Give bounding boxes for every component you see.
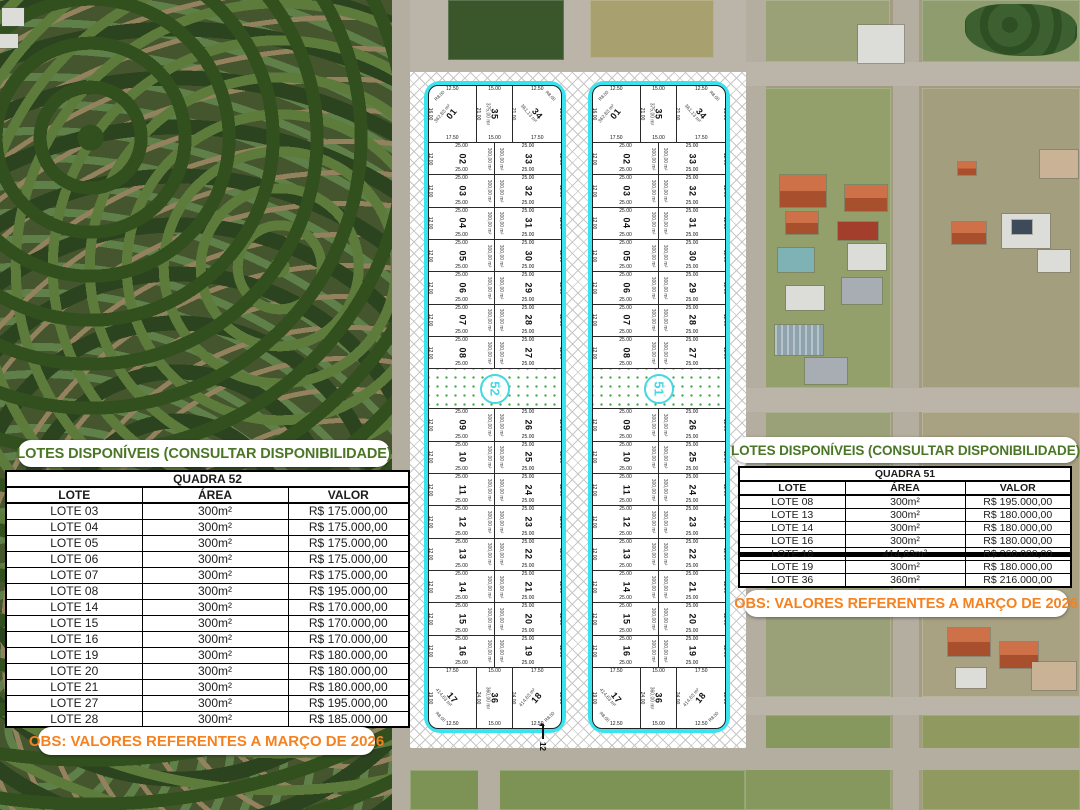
lot-cell: 17.5012.5019.0018414,63 m²R8.00 [513,668,561,728]
lot-cell: 25.0025.0012.0013300,00 m² [429,539,495,570]
dimension-label: 25.00 [455,507,468,512]
dimension-label: 25.00 [522,168,535,173]
lot-row: 25.0025.0012.0011300,00 m²25.0025.0012.0… [593,474,725,506]
lot-number: 15 [621,613,630,624]
dimension-label: 12.00 [428,613,432,626]
cell-area: 300m² [142,535,288,551]
road [745,388,1080,412]
dimension-label: 12.00 [592,249,596,262]
dimension-label: 19.00 [722,692,726,705]
lot-number: 30 [524,250,533,261]
dimension-label: 12.50 [610,87,623,92]
cell-valor: R$ 180.000,00 [288,663,409,679]
dimension-label: 12.00 [428,346,432,359]
area-label: 300,00 m² [498,212,503,235]
dimension-label: 12.00 [558,217,562,230]
table-row: LOTE 13300m²R$ 180.000,00 [739,509,1071,522]
dimension-label: 25.00 [686,306,699,311]
dimension-label: 25.00 [455,564,468,569]
dimension-label: 12.50 [695,722,708,727]
house-roof [805,358,847,384]
title-banner-text: LOTES DISPONÍVEIS (CONSULTAR DISPONIBILI… [731,443,1080,458]
lot-cell: 17.5012.5019.0017414,63 m²R8.00 [593,668,641,728]
dimension-label: 25.00 [619,265,632,270]
dimension-label: 25.00 [619,604,632,609]
dimension-label: 12.00 [428,314,432,327]
lot-cell: 25.0025.0012.0002300,00 m² [429,143,495,174]
area-label: 300,00 m² [486,511,491,534]
dimension-label: 24.00 [638,692,643,705]
dimension-label: 25.00 [455,499,468,504]
lot-row: 25.0025.0012.0015300,00 m²25.0025.0012.0… [429,603,561,635]
dimension-label: 12.00 [558,282,562,295]
table-row: LOTE 19300m²R$ 180.000,00 [6,647,409,663]
area-label: 300,00 m² [498,341,503,364]
dimension-label: 25.00 [455,572,468,577]
dimension-label: 12.00 [592,346,596,359]
cell-lote: LOTE 16 [739,535,845,548]
dimension-label: 12.00 [592,548,596,561]
dimension-label: 25.00 [686,168,699,173]
lot-number: 20 [688,613,697,624]
lot-number: 36 [654,692,663,703]
lot-row: 25.0025.0012.0005300,00 m²25.0025.0012.0… [429,240,561,272]
lot-number: 07 [457,315,466,326]
area-label: 300,00 m² [650,309,655,332]
area-label: 360,00 m² [649,687,654,710]
dimension-label: 15.00 [652,722,665,727]
building [2,8,24,26]
dimension-label: 12.00 [558,516,562,529]
dimension-label: 25.00 [522,499,535,504]
house-roof [956,668,986,688]
lot-number: 13 [621,549,630,560]
lot-cell: 25.0025.0012.0007300,00 m² [429,305,495,336]
area-label: 300,00 m² [486,309,491,332]
cell-valor: R$ 180.000,00 [965,561,1071,574]
dimension-label: 25.00 [455,233,468,238]
dimension-label: 12.00 [428,249,432,262]
lot-cell: 25.0025.0012.0008300,00 m² [593,337,659,368]
column-header: LOTE [6,487,142,503]
road [410,748,1080,770]
dimension-label: 25.00 [455,298,468,303]
lot-cell: 25.0025.0012.0010300,00 m² [429,442,495,473]
cell-lote: LOTE 27 [6,695,142,711]
table-row: LOTE 03300m²R$ 175.000,00 [6,503,409,519]
lot-cell: 25.0025.0012.0014300,00 m² [593,571,659,602]
area-label: 300,00 m² [662,180,667,203]
cell-lote: LOTE 08 [739,495,845,509]
dimension-label: 25.00 [522,233,535,238]
lot-row: 25.0025.0012.0013300,00 m²25.0025.0012.0… [429,539,561,571]
dimension-label: 25.00 [686,467,699,472]
dimension-label: 12.00 [428,483,432,496]
dimension-label: 25.00 [686,572,699,577]
house-roof [786,286,824,310]
lot-cell: 12.5017.5016.0034361,13 m²R8.00 [513,86,561,142]
dimension-label: 25.00 [686,564,699,569]
cell-area: 300m² [142,631,288,647]
lot-row: 25.0025.0012.0009300,00 m²25.0025.0012.0… [593,409,725,441]
lot-row: 12.5017.5016.0001362,83 m²R8.0015.0015.0… [593,86,725,143]
lot-cell: 25.0025.0012.0022300,00 m² [495,539,561,570]
obs-banner-text: OBS: VALORES REFERENTES A MARÇO DE 2026 [29,733,384,750]
lot-cell: 25.0025.0012.0015300,00 m² [593,603,659,634]
dimension-label: 25.00 [686,661,699,666]
lot-row: 25.0025.0012.0015300,00 m²25.0025.0012.0… [593,603,725,635]
lot-number: 27 [524,347,533,358]
lot-cell: 25.0025.0012.0026300,00 m² [495,409,561,440]
area-label: 300,00 m² [662,575,667,598]
area-label: 300,00 m² [650,341,655,364]
cell-area: 300m² [845,561,965,574]
block-number-badge: 52 [480,374,510,404]
lot-number: 12 [457,516,466,527]
dimension-label: 12.00 [592,645,596,658]
obs-banner-text: OBS: VALORES REFERENTES A MARÇO DE 2026 [734,596,1078,612]
area-label: 300,00 m² [486,147,491,170]
lot-number: 28 [524,315,533,326]
lot-cell: 25.0025.0012.0004300,00 m² [593,208,659,239]
dimension-label: 25.00 [619,330,632,335]
cell-area: 300m² [142,519,288,535]
lot-cell: 25.0025.0012.0012300,00 m² [593,506,659,537]
lot-cell: 12.5017.5016.0001362,83 m²R8.00 [429,86,477,142]
dimension-label: 12.00 [428,580,432,593]
area-label: 300,00 m² [486,277,491,300]
dimension-label: 25.00 [522,176,535,181]
lot-number: 10 [621,452,630,463]
table-row: LOTE 04300m²R$ 175.000,00 [6,519,409,535]
lot-cell: 25.0025.0012.0012300,00 m² [429,506,495,537]
lot-number: 19 [524,646,533,657]
corner-radius-label: R8.00 [434,712,446,724]
dimension-label: 25.00 [686,241,699,246]
lot-cell: 25.0025.0012.0010300,00 m² [593,442,659,473]
dimension-label: 12.00 [722,580,726,593]
house-roof [848,244,886,270]
dimension-label: 25.00 [619,168,632,173]
dimension-label: 25.00 [455,596,468,601]
corner-radius-label: R8.00 [708,712,720,724]
block-number: 52 [488,382,503,396]
house-roof [780,175,826,207]
dimension-label: 25.00 [522,241,535,246]
dimension-label: 25.00 [619,572,632,577]
lot-cell: 25.0025.0012.0024300,00 m² [659,474,725,505]
dimension-label: 12.00 [592,419,596,432]
trees [965,4,1077,56]
lot-number: 32 [524,185,533,196]
lot-number: 33 [688,153,697,164]
lot-number: 28 [688,315,697,326]
lot-cell: 25.0025.0012.0009300,00 m² [429,409,495,440]
dimension-label: 25.00 [455,209,468,214]
dimension-label: 25.00 [686,443,699,448]
lot-number: 09 [457,419,466,430]
cell-valor: R$ 180.000,00 [288,679,409,695]
area-label: 300,00 m² [486,640,491,663]
cell-lote: LOTE 19 [6,647,142,663]
table-row: LOTE 14300m²R$ 170.000,00 [6,599,409,615]
cell-lote: LOTE 16 [6,631,142,647]
cell-area: 300m² [142,663,288,679]
lot-number: 08 [457,347,466,358]
area-label: 300,00 m² [486,414,491,437]
dimension-label: 12.00 [558,419,562,432]
dimension-label: 12.00 [722,451,726,464]
dimension-label: 24.00 [474,692,479,705]
cell-valor: R$ 195.000,00 [288,695,409,711]
area-label: 300,00 m² [498,309,503,332]
area-label: 300,00 m² [498,244,503,267]
house-roof [838,222,878,240]
lot-number: 35 [490,108,499,119]
lot-row: 25.0025.0012.0007300,00 m²25.0025.0012.0… [593,305,725,337]
lot-row: 17.5012.5019.0017414,63 m²R8.0015.0015.0… [429,668,561,728]
dimension-label: 15.00 [488,669,501,674]
lot-cell: 12.5017.5016.0034361,13 m²R8.00 [677,86,725,142]
cell-lote: LOTE 03 [6,503,142,519]
dimension-label: 12.00 [722,613,726,626]
table-row: LOTE 28300m²R$ 185.000,00 [6,711,409,727]
area-label: 300,00 m² [650,180,655,203]
lot-number: 22 [688,549,697,560]
cell-area: 414,63m² [845,548,965,561]
cell-lote: LOTE 06 [6,551,142,567]
dimension-label: 12.00 [428,516,432,529]
lot-cell: 25.0025.0012.0020300,00 m² [495,603,561,634]
area-label: 300,00 m² [486,341,491,364]
lot-cell: 25.0025.0012.0016300,00 m² [429,636,495,667]
dimension-label: 25.00 [686,410,699,415]
table-row: LOTE 08300m²R$ 195.000,00 [6,583,409,599]
dimension-label: 12.00 [428,185,432,198]
dimension-label: 12.00 [722,217,726,230]
area-label: 300,00 m² [650,414,655,437]
parcel [922,88,1080,388]
cell-valor: R$ 185.000,00 [288,711,409,727]
dimension-label: 25.00 [686,273,699,278]
table-header-row: LOTEÁREAVALOR [739,481,1071,495]
cell-valor: R$ 180.000,00 [965,522,1071,535]
dimension-label: 12.00 [592,580,596,593]
dimension-label: 12.00 [722,548,726,561]
dimension-label: 25.00 [455,540,468,545]
lot-number: 11 [621,484,630,495]
flyer-root: 12.5017.5016.0001362,83 m²R8.0015.0015.0… [0,0,1080,810]
lot-number: 27 [688,347,697,358]
cell-area: 300m² [142,647,288,663]
lot-number: 16 [621,646,630,657]
dimension-label: 17.50 [446,136,459,141]
dimension-label: 25.00 [522,410,535,415]
corner-radius-label: R8.00 [544,712,556,724]
dimension-label: 25.00 [686,540,699,545]
dimension-label: 19.00 [558,692,562,705]
dimension-label: 12.50 [695,87,708,92]
dimension-label: 25.00 [619,507,632,512]
lot-row: 25.0025.0012.0002300,00 m²25.0025.0012.0… [593,143,725,175]
lot-number: 23 [688,516,697,527]
dimension-label: 25.00 [455,475,468,480]
cell-valor: R$ 170.000,00 [288,631,409,647]
lot-cell: 25.0025.0012.0011300,00 m² [429,474,495,505]
lot-row: 25.0025.0012.0010300,00 m²25.0025.0012.0… [429,442,561,474]
cell-lote: LOTE 18 [739,548,845,561]
lot-number: 22 [524,549,533,560]
table-row: LOTE 16300m²R$ 170.000,00 [6,631,409,647]
area-label: 300,00 m² [486,478,491,501]
road [478,748,500,810]
area-label: 360,00 m² [485,687,490,710]
lot-number: 02 [457,153,466,164]
area-label: 375,00 m² [485,103,490,126]
cell-valor: R$ 175.000,00 [288,503,409,519]
dimension-label: 25.00 [686,435,699,440]
lot-cell: 25.0025.0012.0027300,00 m² [659,337,725,368]
area-label: 300,00 m² [486,608,491,631]
area-label: 300,00 m² [498,543,503,566]
dimension-label: 25.00 [522,306,535,311]
lot-cell: 25.0025.0012.0024300,00 m² [495,474,561,505]
dimension-label: 12.00 [722,419,726,432]
dimension-label: 25.00 [686,532,699,537]
dimension-label: 25.00 [522,443,535,448]
dimension-label: 25.00 [522,540,535,545]
table-quadra-51: QUADRA 51LOTEÁREAVALORLOTE 08300m²R$ 195… [738,466,1072,588]
lot-cell: 25.0025.0012.0033300,00 m² [659,143,725,174]
dimension-label: 25.00 [686,499,699,504]
lot-cell: 25.0025.0012.0013300,00 m² [593,539,659,570]
lot-cell: 25.0025.0012.0002300,00 m² [593,143,659,174]
dimension-label: 12.00 [558,185,562,198]
dimension-label: 12.00 [558,249,562,262]
dimension-label: 25.00 [619,467,632,472]
lot-cell: 25.0025.0012.0032300,00 m² [659,175,725,206]
area-label: 300,00 m² [486,212,491,235]
dimension-label: 25.00 [686,362,699,367]
dimension-label: 25.00 [686,629,699,634]
lot-row: 25.0025.0012.0003300,00 m²25.0025.0012.0… [429,175,561,207]
dimension-label: 25.00 [686,330,699,335]
cell-valor: R$ 170.000,00 [288,615,409,631]
dimension-label: 25.00 [686,233,699,238]
lot-cell: 25.0025.0012.0005300,00 m² [429,240,495,271]
cell-valor: R$ 180.000,00 [288,647,409,663]
lot-cell: 25.0025.0012.0032300,00 m² [495,175,561,206]
dimension-label: 25.00 [522,265,535,270]
lot-number: 05 [457,250,466,261]
dimension-label: 12.00 [722,516,726,529]
lot-number: 11 [457,484,466,495]
dimension-label: 12.00 [722,152,726,165]
lot-number: 06 [621,282,630,293]
column-header: LOTE [739,481,845,495]
dimension-label: 17.50 [446,669,459,674]
column-header: VALOR [965,481,1071,495]
house-roof [845,185,887,211]
dimension-label: 15.00 [652,87,665,92]
dimension-label: 15.00 [488,87,501,92]
dimension-label: 25.00 [686,209,699,214]
lot-cell: 25.0025.0012.0016300,00 m² [593,636,659,667]
lot-row: 25.0025.0012.0013300,00 m²25.0025.0012.0… [593,539,725,571]
lot-number: 21 [688,581,697,592]
dimension-label: 17.50 [695,136,708,141]
block-number: 51 [652,382,667,396]
table-row: LOTE 21300m²R$ 180.000,00 [6,679,409,695]
table-title: QUADRA 51 [739,467,1071,481]
cell-area: 300m² [142,599,288,615]
lot-row: 25.0025.0012.0004300,00 m²25.0025.0012.0… [429,208,561,240]
dimension-label: 12.50 [446,722,459,727]
dimension-label: 25.00 [686,596,699,601]
area-label: 300,00 m² [662,414,667,437]
plat-block-inner: 12.5017.5016.0001362,83 m²R8.0015.0015.0… [592,85,726,729]
lot-cell: 12.5017.5016.0001362,83 m²R8.00 [593,86,641,142]
area-label: 300,00 m² [498,180,503,203]
area-label: 300,00 m² [498,147,503,170]
area-label: 300,00 m² [662,309,667,332]
lot-cell: 25.0025.0012.0025300,00 m² [495,442,561,473]
dimension-label: 25.00 [619,661,632,666]
area-label: 300,00 m² [662,640,667,663]
dimension-label: 25.00 [686,604,699,609]
cell-area: 300m² [142,551,288,567]
cell-valor: R$ 175.000,00 [288,567,409,583]
dimension-label: 25.00 [619,637,632,642]
dimension-label: 12.00 [592,282,596,295]
dimension-label: 25.00 [619,362,632,367]
dimension-label: 25.00 [522,596,535,601]
dimension-label: 16.00 [592,108,596,121]
lot-cell: 25.0025.0012.0003300,00 m² [429,175,495,206]
area-label: 300,00 m² [650,446,655,469]
street-number: 12 [538,742,547,751]
dimension-label: 17.50 [531,669,544,674]
dimension-label: 25.00 [522,338,535,343]
lot-number: 36 [490,692,499,703]
cell-area: 300m² [845,535,965,548]
lot-number: 21 [524,581,533,592]
house-roof [775,325,823,355]
column-header: ÁREA [142,487,288,503]
cell-area: 300m² [142,567,288,583]
lot-cell: 25.0025.0012.0004300,00 m² [429,208,495,239]
dimension-label: 25.00 [522,532,535,537]
corner-radius-label: R8.00 [598,712,610,724]
lot-cell: 25.0025.0012.0028300,00 m² [495,305,561,336]
table-row: LOTE 36360m²R$ 216.000,00 [739,574,1071,588]
dimension-label: 12.00 [558,548,562,561]
cell-valor: R$ 175.000,00 [288,535,409,551]
lot-number: 29 [524,282,533,293]
dimension-label: 25.00 [522,330,535,335]
corner-radius-label: R8.00 [708,90,720,102]
cell-lote: LOTE 04 [6,519,142,535]
dimension-label: 25.00 [619,499,632,504]
dimension-label: 25.00 [455,637,468,642]
dimension-label: 12.50 [531,87,544,92]
area-label: 300,00 m² [486,244,491,267]
cell-lote: LOTE 28 [6,711,142,727]
lot-number: 14 [457,581,466,592]
dimension-label: 25.00 [455,410,468,415]
lot-cell: 25.0025.0012.0021300,00 m² [495,571,561,602]
dimension-label: 25.00 [619,298,632,303]
